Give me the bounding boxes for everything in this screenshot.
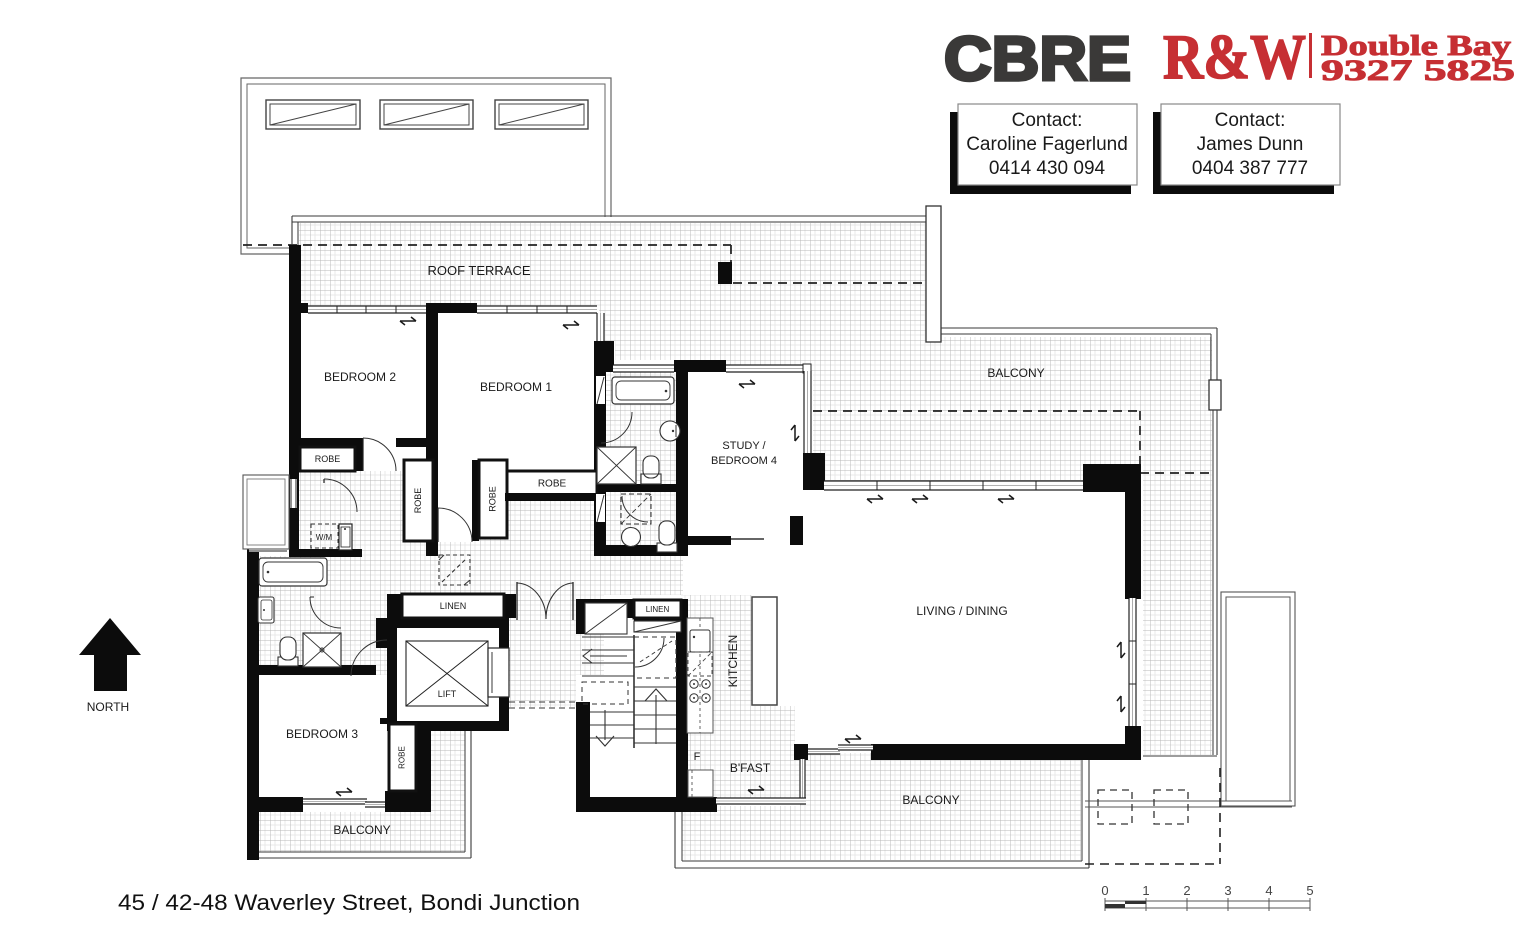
svg-text:ROBE: ROBE (487, 486, 497, 512)
svg-text:BEDROOM 1: BEDROOM 1 (480, 380, 552, 394)
svg-text:9327 5825: 9327 5825 (1321, 54, 1515, 87)
svg-text:Caroline Fagerlund: Caroline Fagerlund (966, 134, 1128, 155)
svg-text:BEDROOM 4: BEDROOM 4 (711, 455, 777, 467)
svg-text:2: 2 (1183, 883, 1190, 898)
svg-text:Contact:: Contact: (1012, 110, 1083, 131)
svg-text:5: 5 (1306, 883, 1313, 898)
svg-text:ROBE: ROBE (538, 479, 567, 490)
svg-text:45 / 42-48 Waverley Street, Bo: 45 / 42-48 Waverley Street, Bondi Juncti… (118, 890, 580, 915)
svg-text:ROBE: ROBE (413, 488, 423, 514)
svg-text:KITCHEN: KITCHEN (726, 635, 740, 688)
svg-text:0: 0 (1101, 883, 1108, 898)
svg-text:ROBE: ROBE (315, 454, 341, 464)
svg-text:B'FAST: B'FAST (730, 761, 771, 775)
svg-text:NORTH: NORTH (87, 700, 129, 714)
svg-text:1: 1 (1142, 883, 1149, 898)
svg-text:LIFT: LIFT (438, 689, 457, 699)
svg-text:LINEN: LINEN (646, 605, 670, 614)
svg-text:STUDY /: STUDY / (722, 440, 766, 452)
svg-text:BALCONY: BALCONY (987, 366, 1044, 380)
svg-text:BALCONY: BALCONY (333, 823, 390, 837)
svg-text:CBRE: CBRE (944, 25, 1131, 94)
svg-text:F: F (694, 751, 701, 763)
svg-text:LINEN: LINEN (440, 601, 467, 611)
svg-text:3: 3 (1224, 883, 1231, 898)
svg-text:BALCONY: BALCONY (902, 793, 959, 807)
svg-text:ROOF TERRACE: ROOF TERRACE (427, 263, 530, 278)
svg-text:0414 430 094: 0414 430 094 (989, 158, 1106, 179)
svg-text:ROBE: ROBE (398, 746, 407, 769)
svg-text:LIVING / DINING: LIVING / DINING (916, 604, 1007, 618)
svg-text:James Dunn: James Dunn (1197, 134, 1304, 155)
svg-text:BEDROOM 2: BEDROOM 2 (324, 370, 396, 384)
svg-text:Contact:: Contact: (1215, 110, 1286, 131)
svg-text:BEDROOM 3: BEDROOM 3 (286, 727, 358, 741)
svg-text:R&W: R&W (1163, 21, 1306, 92)
svg-text:W/M: W/M (316, 533, 333, 542)
svg-text:0404 387 777: 0404 387 777 (1192, 158, 1308, 179)
svg-text:4: 4 (1265, 883, 1272, 898)
